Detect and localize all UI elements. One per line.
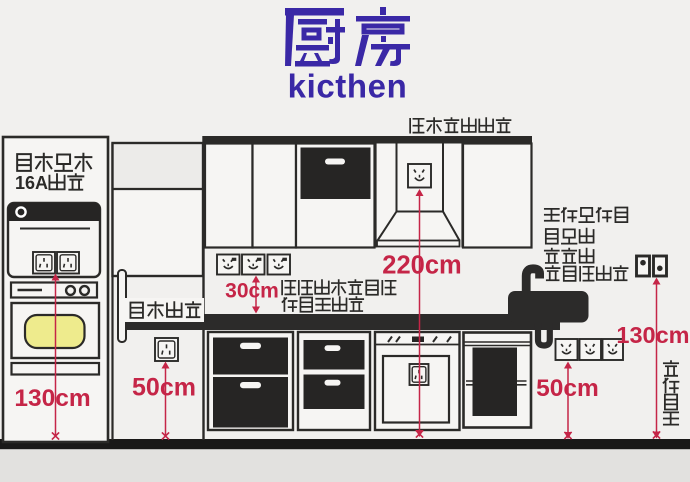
svg-text:130cm: 130cm [616, 322, 689, 348]
svg-text:kicthen: kicthen [288, 68, 408, 105]
svg-text:130cm: 130cm [14, 385, 90, 412]
svg-text:220cm: 220cm [382, 252, 461, 280]
svg-text:50cm: 50cm [132, 374, 196, 402]
svg-text:16A: 16A [15, 173, 48, 193]
svg-text:50cm: 50cm [536, 375, 599, 402]
svg-text:30cm: 30cm [225, 280, 279, 303]
